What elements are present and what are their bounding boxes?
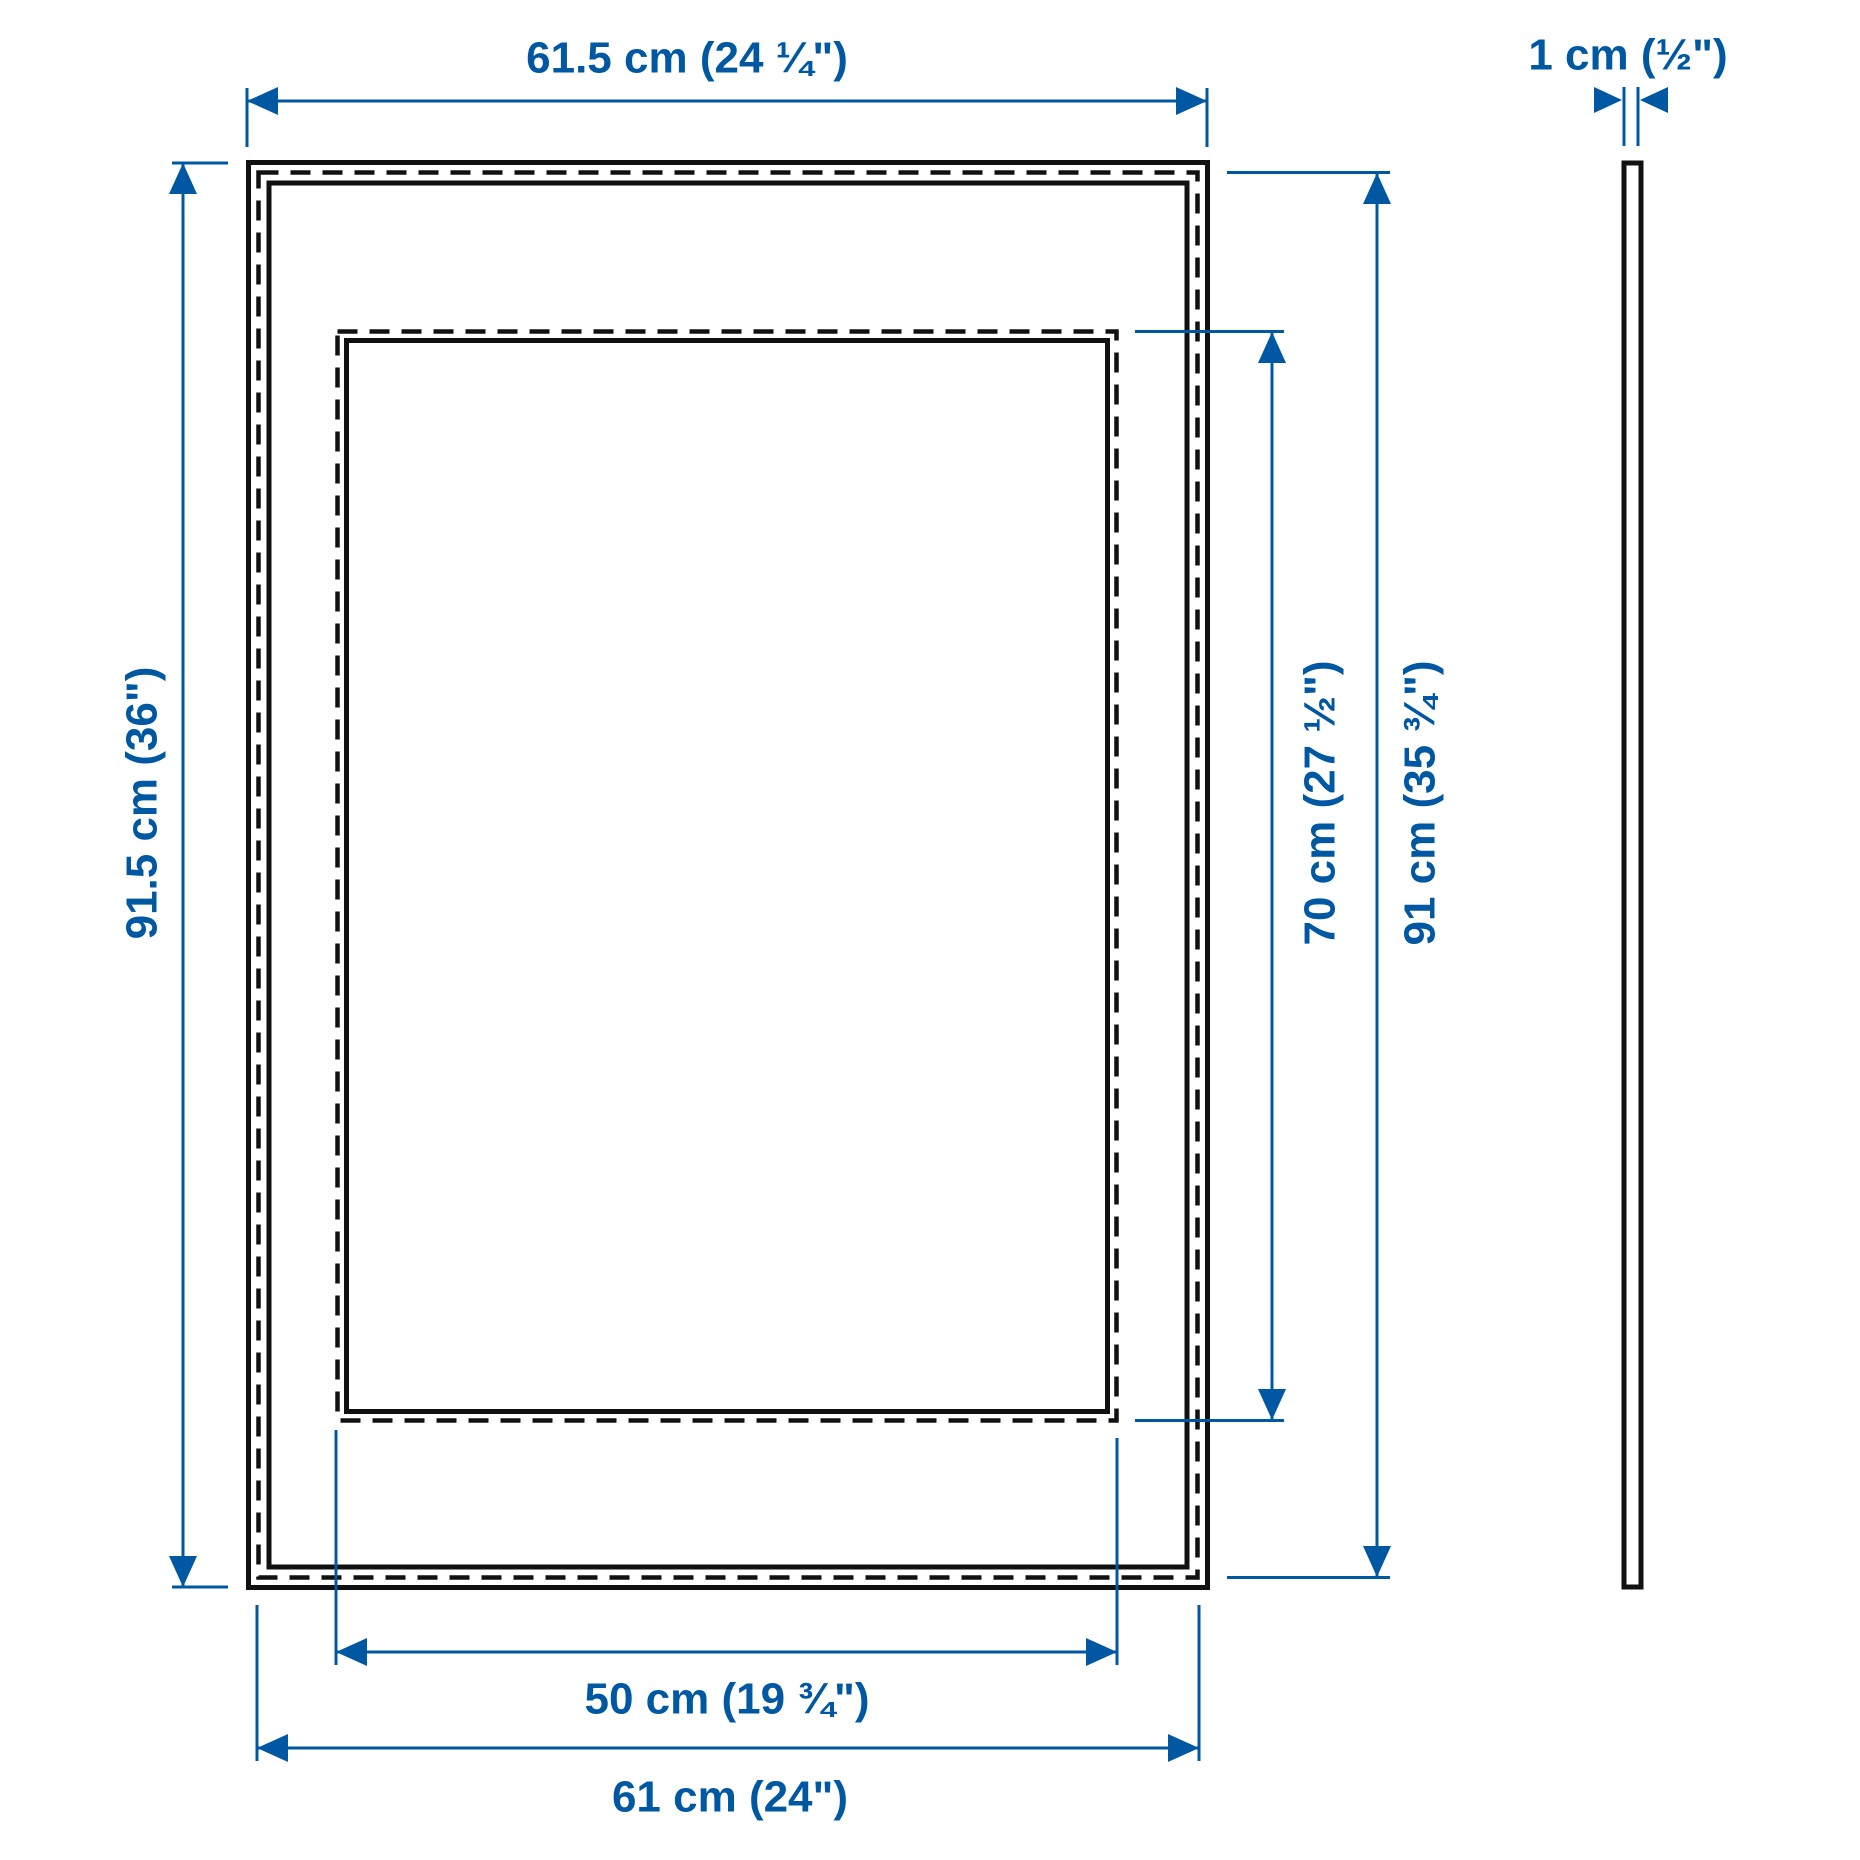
dim-outer-width: 61.5 cm (24 ¼") <box>247 34 1207 148</box>
arrowhead-up <box>1363 173 1391 204</box>
dim-thickness: 1 cm (½") <box>1528 31 1727 147</box>
arrowhead-left <box>1640 87 1668 113</box>
dim-outer-height-label: 91.5 cm (36") <box>118 667 167 940</box>
dim-outer-height: 91.5 cm (36") <box>118 163 229 1587</box>
dim-outer-width-label: 61.5 cm (24 ¼") <box>526 34 848 83</box>
frame-front-view <box>249 163 1208 1588</box>
dim-picture-width-label: 61 cm (24") <box>612 1773 848 1822</box>
arrowhead-right <box>1594 87 1622 113</box>
arrowhead-left <box>336 1638 367 1666</box>
arrowhead-down <box>1258 1389 1286 1420</box>
arrowhead-up <box>169 163 197 194</box>
frame-outer-edge-rect <box>249 163 1208 1588</box>
arrowhead-up <box>1258 332 1286 363</box>
dim-thickness-label: 1 cm (½") <box>1528 31 1727 80</box>
dim-visible-picture-width-label: 50 cm (19 ¾") <box>584 1675 869 1724</box>
dim-picture-height-label: 91 cm (35 ¾") <box>1396 660 1445 945</box>
arrowhead-right <box>1168 1734 1199 1762</box>
arrowhead-down <box>1363 1546 1391 1577</box>
arrowhead-down <box>169 1556 197 1587</box>
arrowhead-right <box>1176 87 1207 115</box>
arrowhead-left <box>257 1734 288 1762</box>
side-profile-rect <box>1624 163 1641 1587</box>
dim-visible-picture-height-label: 70 cm (27 ½") <box>1296 660 1345 945</box>
arrowhead-right <box>1086 1638 1117 1666</box>
arrowhead-left <box>247 87 278 115</box>
frame-dimension-diagram: 61.5 cm (24 ¼") 91.5 cm (36") 70 cm (27 … <box>0 0 1860 1860</box>
frame-side-view <box>1624 163 1641 1587</box>
